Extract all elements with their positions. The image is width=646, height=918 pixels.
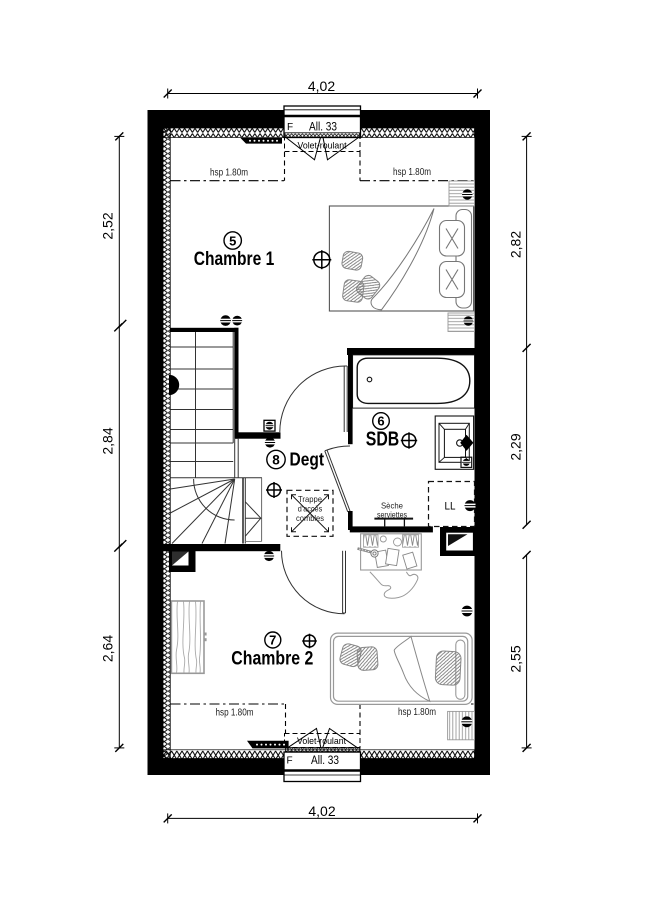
- svg-text:d'accès: d'accès: [298, 504, 323, 514]
- svg-text:F: F: [287, 122, 293, 133]
- svg-text:hsp 1.80m: hsp 1.80m: [210, 167, 248, 178]
- svg-text:All. 33: All. 33: [309, 122, 337, 134]
- svg-text:Degt: Degt: [290, 449, 325, 469]
- svg-text:LL: LL: [445, 501, 456, 513]
- svg-text:Volet-roulant: Volet-roulant: [297, 736, 346, 747]
- svg-text:2,82: 2,82: [508, 231, 524, 258]
- svg-text:8: 8: [272, 452, 280, 467]
- svg-text:Trappe: Trappe: [298, 494, 322, 504]
- svg-text:Chambre 2: Chambre 2: [231, 649, 313, 670]
- svg-text:SDB: SDB: [366, 428, 400, 450]
- svg-text:2,64: 2,64: [100, 635, 116, 662]
- svg-text:7: 7: [269, 633, 276, 648]
- svg-text:6: 6: [377, 414, 384, 429]
- svg-text:combles: combles: [296, 513, 324, 523]
- svg-text:2,84: 2,84: [100, 427, 116, 454]
- svg-text:F: F: [287, 756, 293, 767]
- svg-text:Volet-roulant: Volet-roulant: [298, 141, 347, 152]
- svg-text:hsp 1.80m: hsp 1.80m: [398, 707, 436, 718]
- svg-text:2,29: 2,29: [508, 433, 524, 460]
- svg-text:serviettes: serviettes: [377, 509, 407, 519]
- svg-text:2,52: 2,52: [100, 212, 116, 239]
- svg-text:4,02: 4,02: [308, 78, 335, 94]
- svg-text:2,55: 2,55: [508, 645, 524, 672]
- svg-text:4,02: 4,02: [308, 803, 335, 819]
- svg-text:Chambre 1: Chambre 1: [194, 249, 275, 270]
- svg-text:hsp 1.80m: hsp 1.80m: [216, 708, 254, 719]
- svg-text:All. 33: All. 33: [311, 755, 339, 767]
- svg-text:hsp 1.80m: hsp 1.80m: [393, 167, 431, 178]
- svg-text:5: 5: [229, 233, 236, 248]
